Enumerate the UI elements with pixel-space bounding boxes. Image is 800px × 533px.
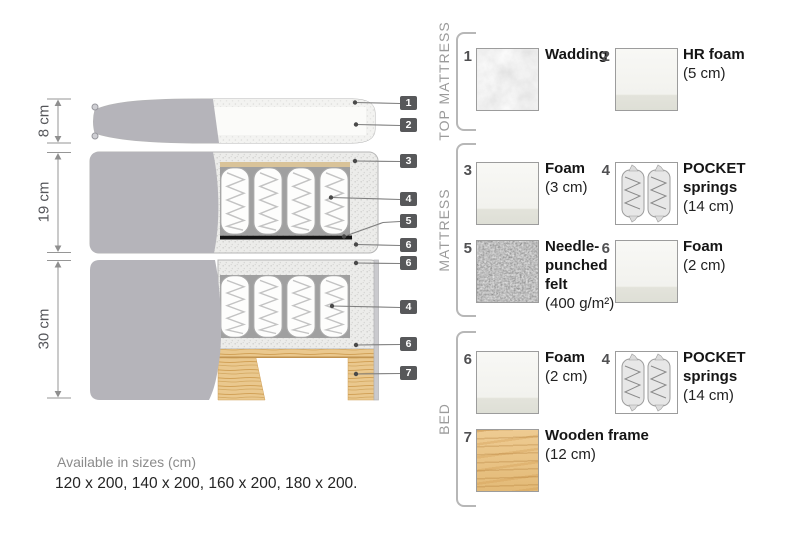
- legend-item-size: (14 cm): [683, 197, 771, 216]
- legend-item-size: (12 cm): [545, 445, 695, 464]
- foam-texture-swatch: [615, 240, 678, 303]
- legend-item-name: POCKET springs: [683, 159, 771, 197]
- legend-number: 2: [592, 48, 610, 65]
- wood-texture-swatch: [476, 429, 539, 492]
- foam-texture-swatch: [476, 351, 539, 414]
- mattress-section: [90, 152, 378, 253]
- dimension-arrows: [47, 99, 71, 398]
- marker-5-felt: 5: [400, 214, 417, 228]
- marker-2-hr-foam: 2: [400, 118, 417, 132]
- legend-item-size: (5 cm): [683, 64, 771, 83]
- legend-number: 1: [454, 48, 472, 65]
- pocket-springs-texture-swatch: [615, 351, 678, 414]
- legend-label: Foam (2 cm): [683, 237, 771, 275]
- marker-4-pocket-springs: 4: [400, 192, 417, 206]
- bed-section: [90, 260, 379, 400]
- legend-item-size: (2 cm): [683, 256, 771, 275]
- bed-cross-section-diagram: [0, 0, 430, 433]
- foam-texture-swatch: [476, 162, 539, 225]
- legend-label: POCKET springs (14 cm): [683, 348, 771, 405]
- foam-texture-swatch: [615, 48, 678, 111]
- legend-label: Wooden frame (12 cm): [545, 426, 695, 464]
- top-mattress-section: [92, 99, 375, 143]
- legend-number: 4: [592, 351, 610, 368]
- available-sizes-list: 120 x 200, 140 x 200, 160 x 200, 180 x 2…: [55, 475, 358, 493]
- marker-1-wadding: 1: [400, 96, 417, 110]
- wadding-texture-swatch: [476, 48, 539, 111]
- legend-label: POCKET springs (14 cm): [683, 159, 771, 216]
- felt-texture-swatch: [476, 240, 539, 303]
- legend-item-name: Wooden frame: [545, 426, 695, 445]
- marker-4-pocket-springs-bed: 4: [400, 300, 417, 314]
- section-title-mattress: MATTRESS: [436, 188, 452, 271]
- pocket-springs-texture-swatch: [615, 162, 678, 225]
- bed-cover: [90, 260, 221, 400]
- bed-construction-infographic: 8 cm 19 cm 30 cm 1 2 3 4 5 6 6 4 6 7 TOP…: [0, 0, 800, 533]
- section-title-top-mattress: TOP MATTRESS: [436, 21, 452, 140]
- legend-item-name: HR foam: [683, 45, 771, 64]
- legend-number: 3: [454, 162, 472, 179]
- legend-number: 6: [592, 240, 610, 257]
- legend-number: 6: [454, 351, 472, 368]
- section-bracket: [456, 32, 476, 131]
- legend-item-name: Foam: [683, 237, 771, 256]
- dimension-30cm: 30 cm: [36, 309, 53, 350]
- fastener-button: [92, 104, 98, 110]
- legend-item-size: (14 cm): [683, 386, 771, 405]
- felt-layer: [220, 236, 352, 240]
- marker-6-foam-bed-bottom: 6: [400, 337, 417, 351]
- legend-number: 4: [592, 162, 610, 179]
- dimension-8cm: 8 cm: [36, 105, 53, 138]
- fastener-button: [92, 133, 98, 139]
- legend-number: 7: [454, 429, 472, 446]
- available-sizes-title: Available in sizes (cm): [57, 454, 196, 470]
- section-title-bed: BED: [436, 403, 452, 435]
- dimension-19cm: 19 cm: [36, 182, 53, 223]
- legend-number: 5: [454, 240, 472, 257]
- marker-3-foam: 3: [400, 154, 417, 168]
- marker-6-foam-bed-top: 6: [400, 256, 417, 270]
- legend-label: HR foam (5 cm): [683, 45, 771, 83]
- mattress-cover: [90, 152, 218, 253]
- legend-item-name: POCKET springs: [683, 348, 771, 386]
- marker-6-foam-mattress: 6: [400, 238, 417, 252]
- marker-7-wooden-frame: 7: [400, 366, 417, 380]
